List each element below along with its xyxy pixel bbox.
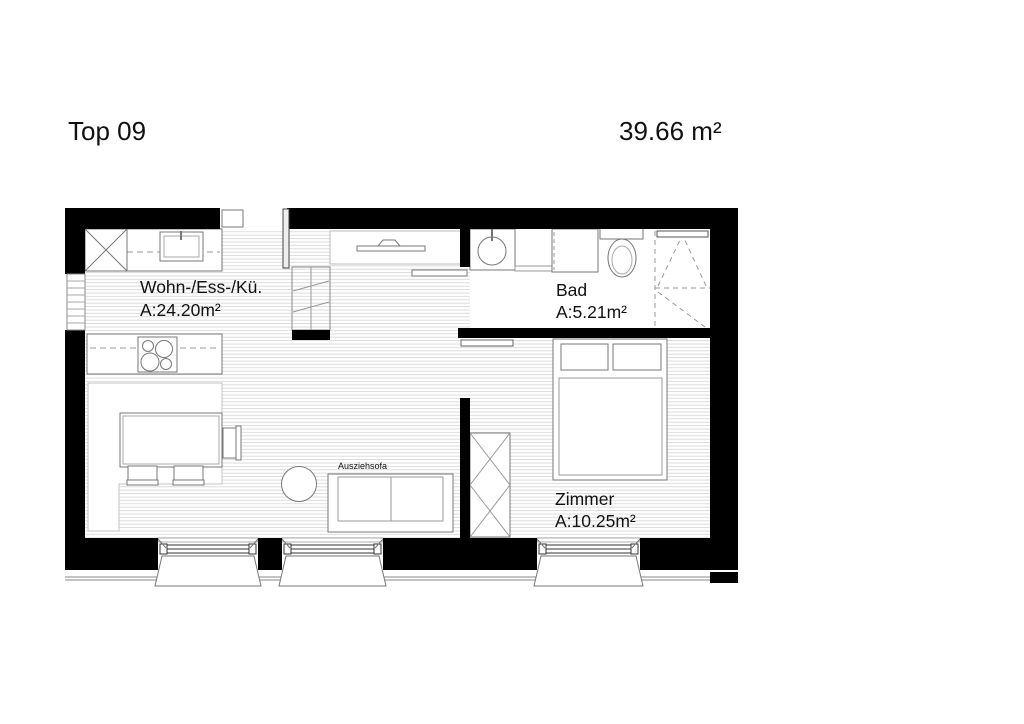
kitchen-sink (160, 231, 203, 261)
window-3 (534, 538, 643, 586)
entrance-threshold (222, 210, 243, 227)
ventilation-shaft (292, 267, 330, 330)
dining-chair-right (223, 426, 241, 460)
room-area-bedroom: A:10.25m² (555, 511, 636, 531)
washing-machine (552, 229, 598, 272)
window-1 (155, 538, 261, 586)
fridge-cabinet (85, 229, 127, 271)
room-label-living: Wohn-/Ess-/Kü. (140, 277, 262, 297)
room-label-bath: Bad (556, 280, 587, 300)
room-area-living: A:24.20m² (140, 300, 221, 320)
hall-shelf (412, 270, 467, 276)
sofa-label: Ausziehsofa (338, 461, 387, 471)
room-area-bath: A:5.21m² (556, 302, 627, 322)
dining-chair-2 (173, 466, 204, 485)
floor-plan-page: Top 09 39.66 m² Wohn-/Ess-/Kü. A:24.20m²… (0, 0, 1024, 724)
entrance-door-leaf (283, 209, 289, 268)
left-wall-window (67, 274, 85, 330)
cooktop (138, 337, 177, 372)
bedroom-sliding-door (461, 340, 513, 346)
floor-plan-canvas: Top 09 39.66 m² Wohn-/Ess-/Kü. A:24.20m²… (0, 0, 1024, 724)
sofa (328, 474, 453, 532)
wardrobe (470, 433, 510, 537)
washbasin (470, 229, 515, 270)
bed (553, 339, 667, 480)
dining-table (120, 413, 222, 467)
side-table (282, 467, 317, 502)
window-2 (279, 538, 386, 586)
total-area-label: 39.66 m² (619, 116, 722, 146)
dining-chair-1 (127, 466, 158, 485)
bath-counter (515, 266, 552, 271)
room-label-bedroom: Zimmer (555, 489, 614, 509)
page-title: Top 09 (68, 116, 146, 146)
